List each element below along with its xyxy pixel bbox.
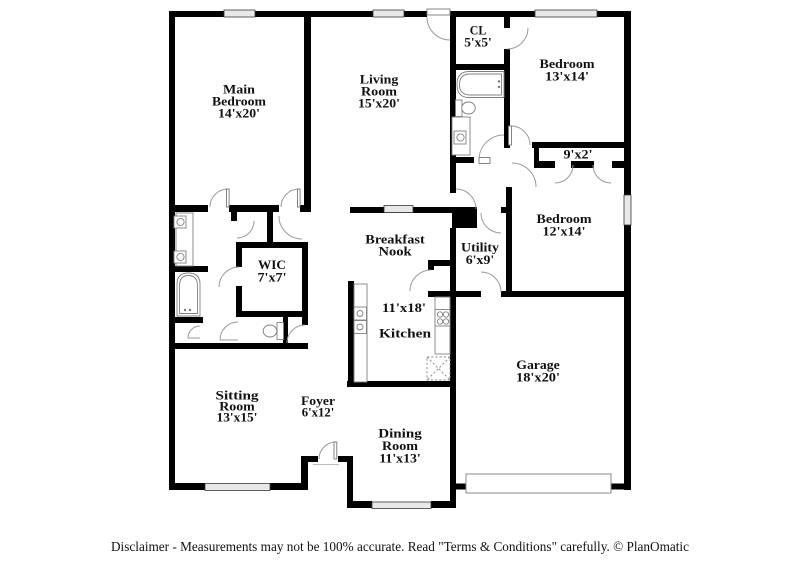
svg-text:14'x20': 14'x20'	[218, 106, 260, 121]
svg-text:6'x12': 6'x12'	[302, 405, 335, 420]
svg-text:Disclaimer - Measurements may: Disclaimer - Measurements may not be 100…	[111, 539, 689, 554]
svg-text:15'x20': 15'x20'	[358, 96, 400, 111]
svg-text:11'x18': 11'x18'	[382, 300, 426, 315]
svg-text:Kitchen: Kitchen	[379, 326, 432, 341]
svg-text:13'x15': 13'x15'	[217, 410, 258, 425]
svg-text:13'x14': 13'x14'	[545, 69, 589, 84]
svg-text:5'x5': 5'x5'	[464, 35, 492, 50]
svg-text:18'x20': 18'x20'	[516, 370, 560, 385]
svg-text:6'x9': 6'x9'	[466, 252, 495, 267]
svg-text:12'x14': 12'x14'	[543, 224, 586, 239]
svg-text:9'x2': 9'x2'	[564, 147, 593, 162]
svg-text:7'x7': 7'x7'	[258, 270, 287, 285]
svg-text:11'x13': 11'x13'	[379, 451, 421, 466]
svg-text:Nook: Nook	[379, 244, 413, 259]
